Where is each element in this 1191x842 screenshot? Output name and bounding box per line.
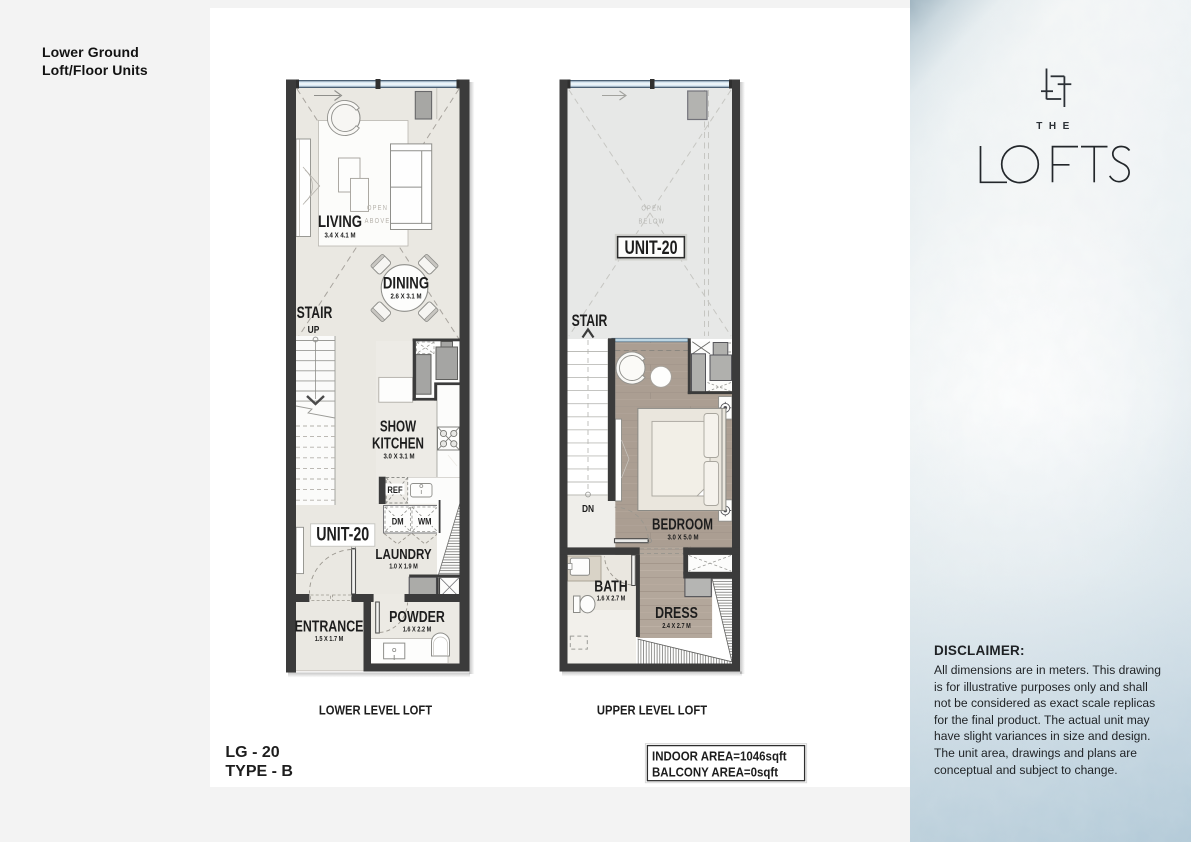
svg-text:DRESS: DRESS [655,604,698,622]
svg-text:STAIR: STAIR [572,312,608,330]
svg-text:OPEN: OPEN [641,205,662,213]
svg-text:2.4 X 2.7 M: 2.4 X 2.7 M [662,622,691,630]
svg-text:WM: WM [418,516,432,527]
svg-text:BEDROOM: BEDROOM [652,515,713,533]
svg-text:2.6 X 3.1 M: 2.6 X 3.1 M [390,293,421,301]
svg-text:OPEN: OPEN [367,204,388,212]
svg-text:REF: REF [387,484,402,495]
svg-text:UP: UP [308,324,320,336]
svg-text:1.6 X 2.2 M: 1.6 X 2.2 M [403,626,432,634]
svg-text:UNIT-20: UNIT-20 [625,237,678,259]
svg-text:3.0 X 5.0 M: 3.0 X 5.0 M [667,534,698,542]
svg-text:THE: THE [1036,121,1076,132]
svg-text:BALCONY AREA=0sqft: BALCONY AREA=0sqft [652,765,778,780]
svg-text:ENTRANCE: ENTRANCE [295,617,364,635]
svg-text:3.4 X 4.1 M: 3.4 X 4.1 M [324,232,355,240]
svg-text:LG - 20: LG - 20 [225,744,279,761]
svg-text:UPPER LEVEL LOFT: UPPER LEVEL LOFT [597,703,708,718]
svg-text:LAUNDRY: LAUNDRY [375,546,431,563]
svg-text:DINING: DINING [383,274,429,293]
svg-text:LOWER LEVEL LOFT: LOWER LEVEL LOFT [319,703,433,718]
svg-text:LIVING: LIVING [318,213,362,232]
svg-text:TYPE - B: TYPE - B [225,763,293,780]
svg-text:ABOVE: ABOVE [365,217,391,225]
svg-text:DM: DM [392,516,404,527]
svg-text:1.0 X 1.9 M: 1.0 X 1.9 M [389,563,418,571]
svg-text:1.6 X 2.7 M: 1.6 X 2.7 M [597,595,626,603]
svg-text:BATH: BATH [594,577,627,595]
svg-text:SHOW: SHOW [380,417,417,435]
svg-text:UNIT-20: UNIT-20 [316,523,369,545]
svg-text:BELOW: BELOW [639,218,666,226]
svg-text:1.5 X 1.7 M: 1.5 X 1.7 M [315,635,344,643]
svg-text:STAIR: STAIR [297,304,333,322]
svg-text:DN: DN [582,503,594,515]
svg-text:INDOOR AREA=1046sqft: INDOOR AREA=1046sqft [652,749,787,764]
svg-text:3.0 X 3.1 M: 3.0 X 3.1 M [383,453,414,461]
svg-text:POWDER: POWDER [389,608,445,626]
svg-text:KITCHEN: KITCHEN [372,434,424,452]
